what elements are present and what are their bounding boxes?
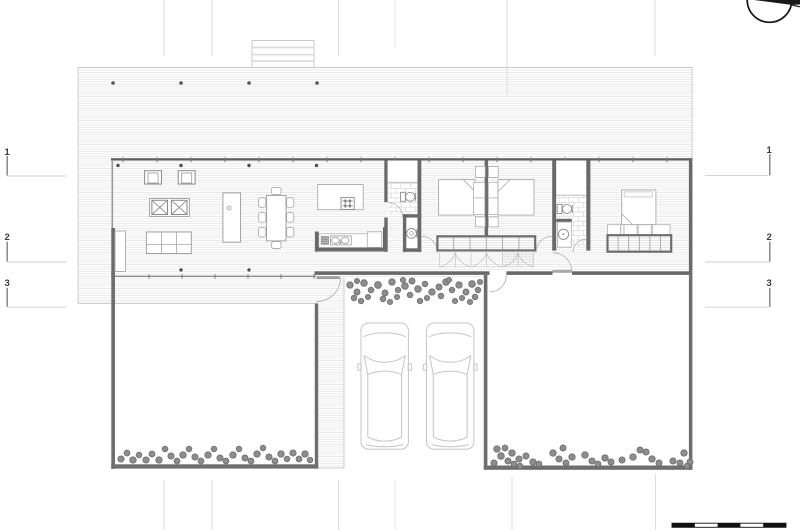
svg-text:3: 3 bbox=[5, 278, 10, 289]
svg-text:2: 2 bbox=[5, 232, 10, 243]
svg-text:3: 3 bbox=[767, 278, 772, 289]
svg-text:2: 2 bbox=[767, 232, 772, 243]
